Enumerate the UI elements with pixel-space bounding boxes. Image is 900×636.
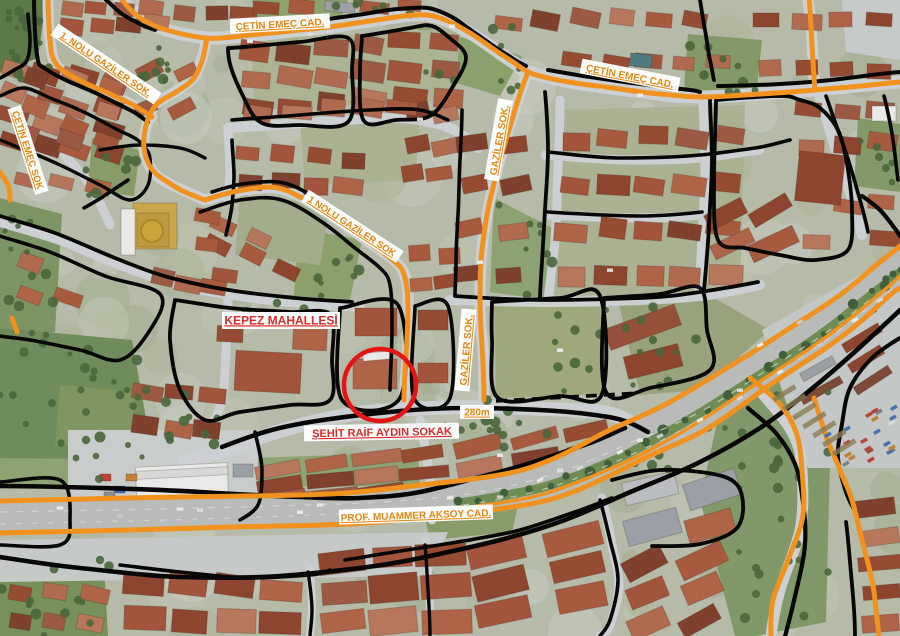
svg-text:ŞEHİT RAİF AYDIN SOKAK: ŞEHİT RAİF AYDIN SOKAK xyxy=(312,425,452,440)
svg-text:280m: 280m xyxy=(464,408,490,419)
svg-text:KEPEZ MAHALLESİ: KEPEZ MAHALLESİ xyxy=(224,312,337,327)
